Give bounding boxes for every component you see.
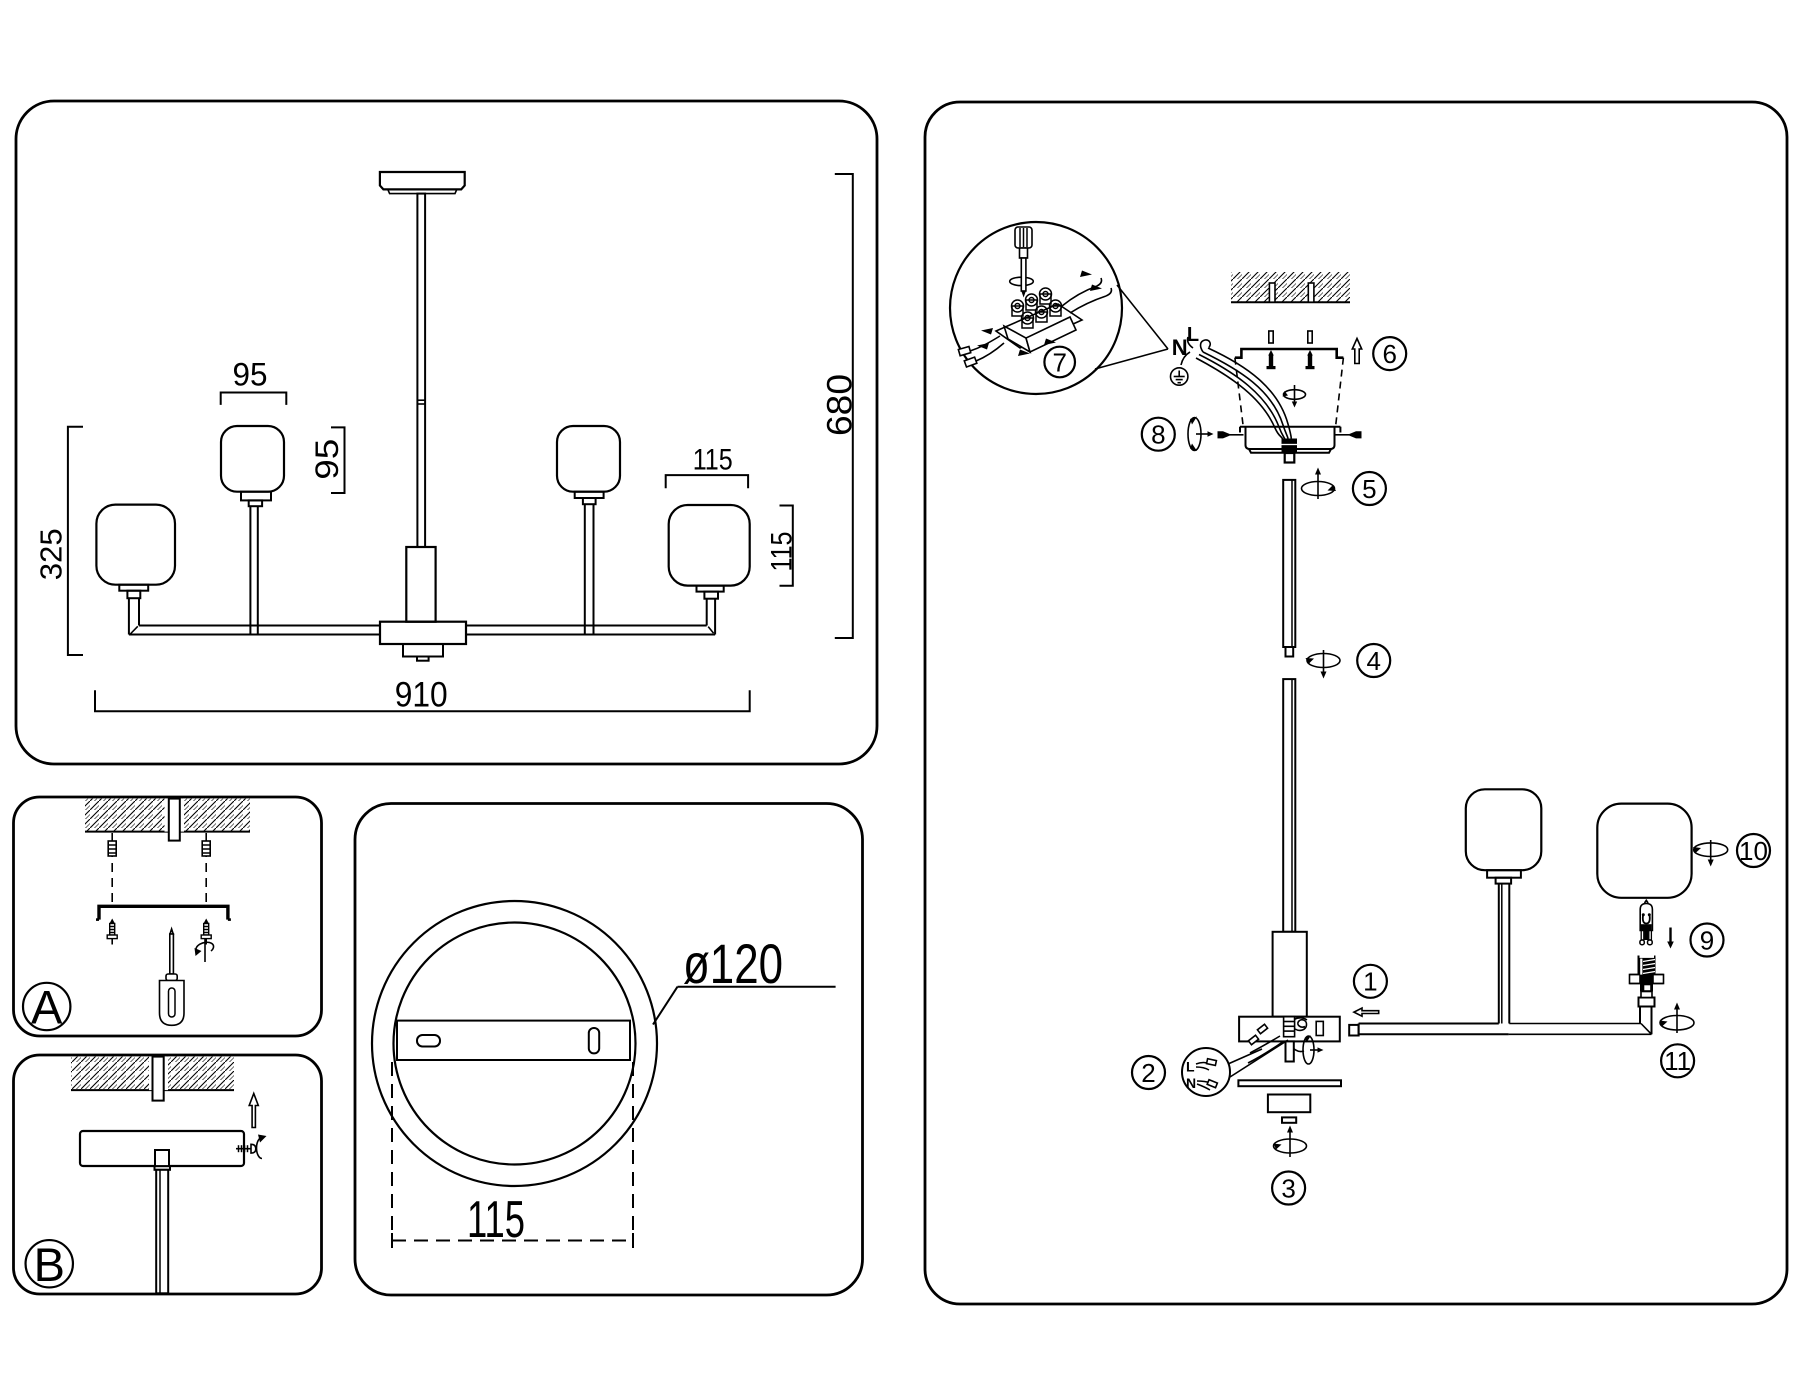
svg-text:L: L xyxy=(1187,324,1199,346)
svg-text:10: 10 xyxy=(1739,836,1768,866)
svg-text:910: 910 xyxy=(395,676,448,715)
svg-text:11: 11 xyxy=(1664,1046,1691,1076)
svg-text:B: B xyxy=(34,1238,65,1291)
svg-text:115: 115 xyxy=(693,443,733,476)
svg-text:N: N xyxy=(1186,1075,1196,1091)
svg-text:8: 8 xyxy=(1151,420,1165,450)
svg-text:95: 95 xyxy=(233,357,268,393)
svg-text:4: 4 xyxy=(1366,646,1380,676)
svg-text:3: 3 xyxy=(1281,1173,1295,1203)
svg-text:A: A xyxy=(31,981,63,1034)
svg-text:7: 7 xyxy=(1052,347,1066,377)
svg-text:N: N xyxy=(1172,335,1188,360)
svg-text:115: 115 xyxy=(467,1191,525,1249)
svg-text:L: L xyxy=(1186,1059,1195,1075)
svg-text:325: 325 xyxy=(33,528,68,580)
svg-text:ø120: ø120 xyxy=(683,932,783,995)
svg-text:2: 2 xyxy=(1141,1058,1155,1088)
svg-text:95: 95 xyxy=(309,439,345,480)
svg-text:1: 1 xyxy=(1363,967,1377,997)
svg-text:9: 9 xyxy=(1700,925,1714,955)
svg-text:5: 5 xyxy=(1362,474,1376,504)
svg-text:6: 6 xyxy=(1382,339,1396,369)
